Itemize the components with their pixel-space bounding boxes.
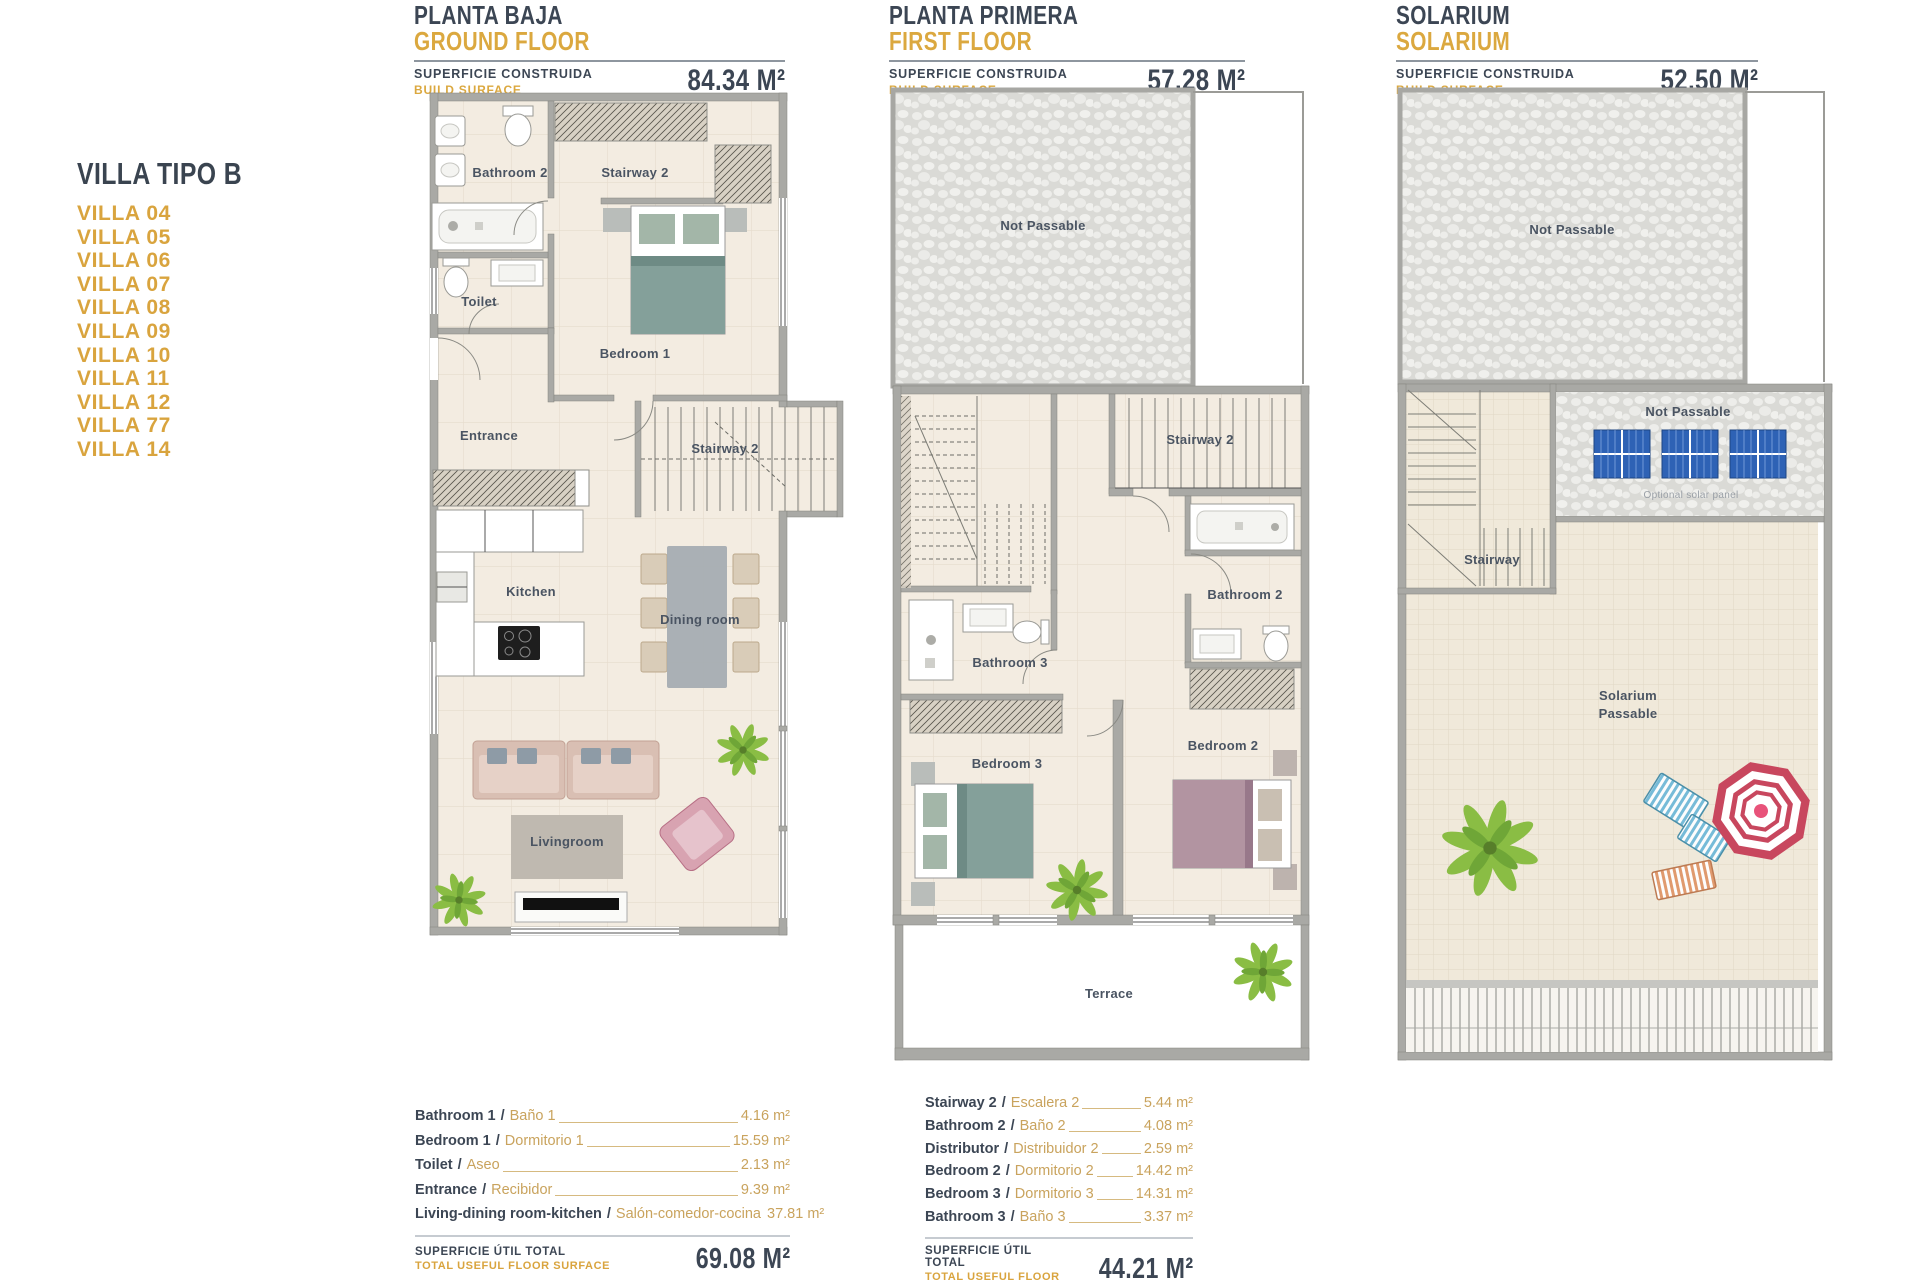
table-row: Bedroom 3/Dormitorio 314.31 m²	[925, 1183, 1193, 1206]
header-rule	[1396, 60, 1758, 62]
surface-label-es: SUPERFICIE CONSTRUIDA	[1396, 67, 1575, 81]
villa-list-item: VILLA 77	[77, 414, 283, 438]
table-row: Bedroom 2/Dormitorio 214.42 m²	[925, 1160, 1193, 1183]
table-row: Toilet/Aseo2.13 m²	[415, 1153, 790, 1178]
leader-line	[587, 1146, 730, 1147]
ground-floor-header: PLANTA BAJA GROUND FLOOR SUPERFICIE CONS…	[414, 2, 785, 98]
villa-type-title-text: VILLA TIPO B	[77, 156, 242, 192]
surface-label-es: SUPERFICIE CONSTRUIDA	[414, 67, 593, 81]
leader-line	[1069, 1222, 1141, 1223]
room-label: Dining room	[660, 612, 740, 627]
panel-title-es-text: SOLARIUM	[1396, 2, 1510, 28]
total-row: SUPERFICIE ÚTIL TOTAL TOTAL USEFUL FLOOR…	[415, 1235, 790, 1276]
row-label-es: Dormitorio 1	[505, 1129, 584, 1154]
villa-list-item: VILLA 10	[77, 344, 283, 368]
solarium-plan: Not Passable Not Passable Optional solar…	[1388, 84, 1835, 1076]
row-label-es: Salón-comedor-cocina	[616, 1202, 761, 1227]
room-label: Terrace	[1085, 986, 1133, 1001]
row-label-en: Toilet	[415, 1153, 453, 1178]
leader-line	[1097, 1199, 1133, 1200]
solar-panel-icon	[1594, 430, 1650, 478]
leader-line	[503, 1171, 738, 1172]
room-label: Not Passable	[1529, 222, 1614, 237]
villa-list-item: VILLA 05	[77, 226, 283, 250]
row-label-en: Bathroom 1	[415, 1104, 496, 1129]
room-label: Toilet	[461, 294, 497, 309]
row-label-es: Recibidor	[491, 1178, 552, 1203]
total-value-text: 69.08 M²	[695, 1243, 790, 1276]
villa-list-item: VILLA 04	[77, 202, 283, 226]
row-value: 5.44 m²	[1144, 1092, 1193, 1115]
panel-title-en-text: GROUND FLOOR	[414, 28, 590, 54]
total-label-en: TOTAL USEFUL FLOOR SURFACE	[925, 1271, 1075, 1280]
leader-line	[559, 1122, 738, 1123]
total-labels: SUPERFICIE ÚTIL TOTAL TOTAL USEFUL FLOOR…	[925, 1245, 1075, 1280]
row-value: 2.59 m²	[1144, 1138, 1193, 1161]
room-label: Entrance	[460, 428, 518, 443]
first-floor-plan: Not Passable Stairway 2 Bathroom 2 Bathr…	[885, 84, 1330, 1072]
panel-title-en: GROUND FLOOR	[414, 28, 785, 54]
room-label: Livingroom	[530, 834, 604, 849]
room-label: Not Passable	[1645, 404, 1730, 419]
leader-line	[1097, 1176, 1133, 1177]
row-value: 37.81 m²	[767, 1202, 824, 1227]
villa-list-item: VILLA 08	[77, 296, 283, 320]
panel-title-es: SOLARIUM	[1396, 2, 1758, 28]
panel-title-es-text: PLANTA BAJA	[414, 2, 563, 28]
row-label-en: Bedroom 3	[925, 1183, 1001, 1206]
row-value: 14.42 m²	[1136, 1160, 1193, 1183]
room-label: Stairway 2	[1166, 432, 1233, 447]
row-separator: /	[1011, 1115, 1015, 1138]
villa-list-item: VILLA 14	[77, 438, 283, 462]
row-label-en: Bedroom 1	[415, 1129, 491, 1154]
sol-pergola	[1406, 980, 1818, 1052]
row-value: 15.59 m²	[733, 1129, 790, 1154]
total-value: 44.21 M²	[1075, 1253, 1193, 1280]
row-label-es: Baño 3	[1020, 1206, 1066, 1229]
row-label-es: Dormitorio 2	[1015, 1160, 1094, 1183]
header-rule	[889, 60, 1245, 62]
table-row: Entrance/Recibidor9.39 m²	[415, 1178, 790, 1203]
panel-title-en: SOLARIUM	[1396, 28, 1758, 54]
room-label: Bedroom 3	[972, 756, 1043, 771]
row-separator: /	[1006, 1160, 1010, 1183]
row-label-es: Dormitorio 3	[1015, 1183, 1094, 1206]
leader-line	[1082, 1108, 1141, 1109]
row-label-en: Distributor	[925, 1138, 999, 1161]
table-row: Bathroom 3/Baño 33.37 m²	[925, 1206, 1193, 1229]
table-row: Bathroom 2/Baño 24.08 m²	[925, 1115, 1193, 1138]
surface-label-es: SUPERFICIE CONSTRUIDA	[889, 67, 1068, 81]
leader-line	[1102, 1153, 1141, 1154]
row-value: 9.39 m²	[741, 1178, 790, 1203]
room-label: Bathroom 2	[1207, 587, 1282, 602]
table-row: Living-dining room-kitchen/Salón-comedor…	[415, 1202, 790, 1227]
panel-title-es-text: PLANTA PRIMERA	[889, 2, 1078, 28]
room-label: Bathroom 3	[972, 655, 1047, 670]
panel-title-en: FIRST FLOOR	[889, 28, 1245, 54]
row-label-es: Distribuidor 2	[1013, 1138, 1098, 1161]
row-label-es: Aseo	[467, 1153, 500, 1178]
row-separator: /	[607, 1202, 611, 1227]
plant-icon	[1223, 932, 1303, 1012]
leader-line	[1069, 1131, 1141, 1132]
row-separator: /	[458, 1153, 462, 1178]
gf-tv-bench-icon	[515, 892, 627, 922]
total-label-es: SUPERFICIE ÚTIL TOTAL	[925, 1245, 1075, 1269]
villa-type-title: VILLA TIPO B	[77, 156, 283, 192]
solar-panel-icon	[1730, 430, 1786, 478]
ground-floor-area-table: Bathroom 1/Baño 14.16 m² Bedroom 1/Dormi…	[415, 1104, 790, 1276]
row-separator: /	[496, 1129, 500, 1154]
villa-list-item: VILLA 12	[77, 391, 283, 415]
panel-title-en-text: FIRST FLOOR	[889, 28, 1032, 54]
room-label: Kitchen	[506, 584, 556, 599]
row-separator: /	[1011, 1206, 1015, 1229]
table-row: Bedroom 1/Dormitorio 115.59 m²	[415, 1129, 790, 1154]
room-label: Bedroom 2	[1188, 738, 1259, 753]
row-label-es: Escalera 2	[1011, 1092, 1080, 1115]
panel-title-es: PLANTA BAJA	[414, 2, 785, 28]
row-label-en: Stairway 2	[925, 1092, 997, 1115]
row-separator: /	[482, 1178, 486, 1203]
panel-title-en-text: SOLARIUM	[1396, 28, 1510, 54]
villa-list-item: VILLA 06	[77, 249, 283, 273]
row-separator: /	[1004, 1138, 1008, 1161]
room-label: Stairway 2	[601, 165, 668, 180]
table-row: Stairway 2/Escalera 25.44 m²	[925, 1092, 1193, 1115]
room-label: Not Passable	[1000, 218, 1085, 233]
leader-line	[555, 1195, 737, 1196]
ground-floor-plan: Bathroom 2 Stairway 2 Toilet Bedroom 1 E…	[415, 86, 855, 950]
villa-list: VILLA TIPO B VILLA 04 VILLA 05 VILLA 06 …	[77, 156, 283, 462]
row-label-en: Bathroom 2	[925, 1115, 1006, 1138]
villa-list-item: VILLA 11	[77, 367, 283, 391]
total-value: 69.08 M²	[672, 1243, 790, 1276]
row-value: 4.16 m²	[741, 1104, 790, 1129]
row-separator: /	[1002, 1092, 1006, 1115]
first-floor-area-table: Stairway 2/Escalera 25.44 m² Bathroom 2/…	[925, 1092, 1193, 1280]
room-label: Bathroom 2	[472, 165, 547, 180]
room-label: Bedroom 1	[600, 346, 671, 361]
row-value: 4.08 m²	[1144, 1115, 1193, 1138]
table-row: Bathroom 1/Baño 14.16 m²	[415, 1104, 790, 1129]
row-label-en: Entrance	[415, 1178, 477, 1203]
total-value-text: 44.21 M²	[1098, 1253, 1193, 1280]
row-label-en: Living-dining room-kitchen	[415, 1202, 602, 1227]
room-label: Passable	[1599, 706, 1658, 721]
solar-panel-icon	[1662, 430, 1718, 478]
row-label-es: Baño 1	[510, 1104, 556, 1129]
total-labels: SUPERFICIE ÚTIL TOTAL TOTAL USEFUL FLOOR…	[415, 1246, 610, 1272]
total-label-es: SUPERFICIE ÚTIL TOTAL	[415, 1246, 610, 1258]
total-row: SUPERFICIE ÚTIL TOTAL TOTAL USEFUL FLOOR…	[925, 1237, 1193, 1280]
row-separator: /	[501, 1104, 505, 1129]
row-label-en: Bedroom 2	[925, 1160, 1001, 1183]
row-value: 3.37 m²	[1144, 1206, 1193, 1229]
row-label-es: Baño 2	[1020, 1115, 1066, 1138]
row-separator: /	[1006, 1183, 1010, 1206]
room-label: Stairway	[1464, 552, 1520, 567]
ff-not-passable-roof	[893, 90, 1303, 386]
row-value: 2.13 m²	[741, 1153, 790, 1178]
row-label-en: Bathroom 3	[925, 1206, 1006, 1229]
floor-plan-sheet: VILLA TIPO B VILLA 04 VILLA 05 VILLA 06 …	[0, 0, 1920, 1280]
panel-title-es: PLANTA PRIMERA	[889, 2, 1245, 28]
total-label-en: TOTAL USEFUL FLOOR SURFACE	[415, 1260, 610, 1272]
header-rule	[414, 60, 785, 62]
room-label: Solarium	[1599, 688, 1657, 703]
villa-list-item: VILLA 09	[77, 320, 283, 344]
table-row: Distributor/Distribuidor 22.59 m²	[925, 1138, 1193, 1161]
room-label: Optional solar panel	[1644, 490, 1739, 501]
row-value: 14.31 m²	[1136, 1183, 1193, 1206]
cooktop-icon	[498, 626, 540, 660]
room-label: Stairway 2	[691, 441, 758, 456]
villa-list-item: VILLA 07	[77, 273, 283, 297]
